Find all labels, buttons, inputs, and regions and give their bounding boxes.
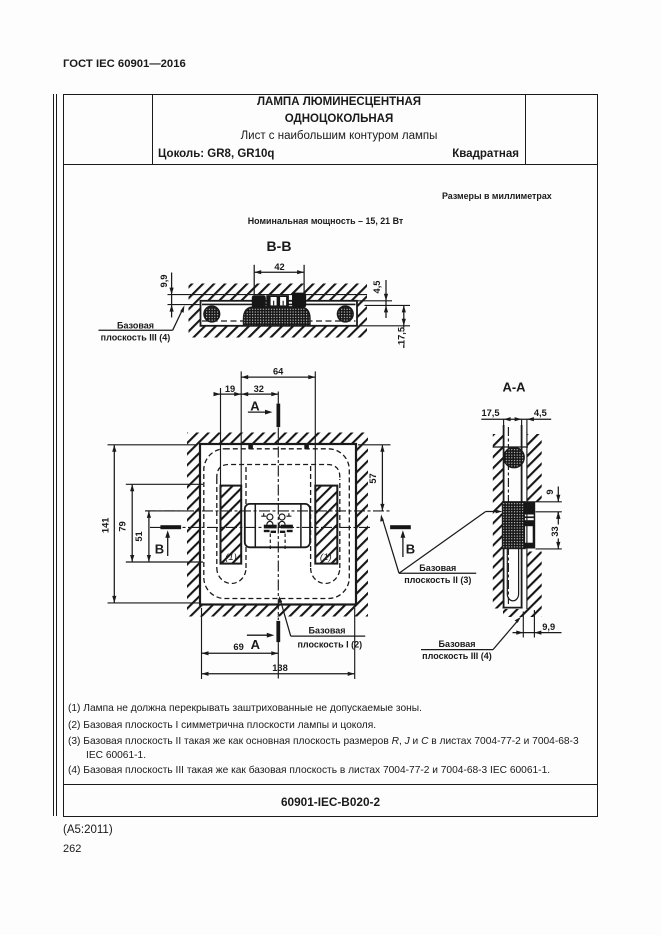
- svg-text:9,9: 9,9: [542, 622, 555, 632]
- svg-text:64: 64: [273, 367, 284, 377]
- svg-text:17,5: 17,5: [396, 327, 406, 345]
- svg-text:4,5: 4,5: [534, 408, 547, 418]
- svg-text:(1): (1): [320, 552, 332, 563]
- svg-text:A: A: [250, 399, 260, 414]
- svg-text:A-A: A-A: [502, 380, 526, 395]
- svg-text:(1): (1): [225, 552, 237, 563]
- svg-text:Базовая: Базовая: [419, 563, 456, 573]
- svg-text:B: B: [406, 542, 415, 557]
- svg-text:Базовая: Базовая: [117, 321, 154, 331]
- svg-text:9,9: 9,9: [159, 275, 169, 288]
- svg-text:Номинальная мощность – 15, 21: Номинальная мощность – 15, 21 Вт: [248, 216, 404, 226]
- svg-text:141: 141: [101, 518, 111, 534]
- svg-text:51: 51: [134, 531, 144, 541]
- svg-text:79: 79: [117, 521, 127, 531]
- svg-text:плоскость I (2): плоскость I (2): [297, 639, 362, 649]
- svg-text:32: 32: [254, 384, 264, 394]
- svg-text:57: 57: [368, 473, 378, 483]
- svg-text:69: 69: [233, 642, 243, 652]
- svg-text:17,5: 17,5: [481, 408, 499, 418]
- svg-text:138: 138: [272, 663, 288, 673]
- svg-text:плоскость III (4): плоскость III (4): [101, 332, 171, 342]
- svg-text:Базовая: Базовая: [308, 625, 345, 635]
- svg-text:A: A: [251, 637, 261, 652]
- svg-text:9: 9: [545, 489, 555, 494]
- svg-text:B: B: [155, 542, 164, 557]
- svg-text:Базовая: Базовая: [438, 639, 475, 649]
- svg-text:B-B: B-B: [267, 238, 292, 254]
- svg-text:19: 19: [225, 384, 235, 394]
- svg-text:плоскость II (3): плоскость II (3): [404, 575, 471, 585]
- svg-text:4,5: 4,5: [372, 281, 382, 294]
- svg-text:плоскость III (4): плоскость III (4): [422, 651, 492, 661]
- svg-text:42: 42: [274, 262, 284, 272]
- svg-text:33: 33: [550, 526, 560, 536]
